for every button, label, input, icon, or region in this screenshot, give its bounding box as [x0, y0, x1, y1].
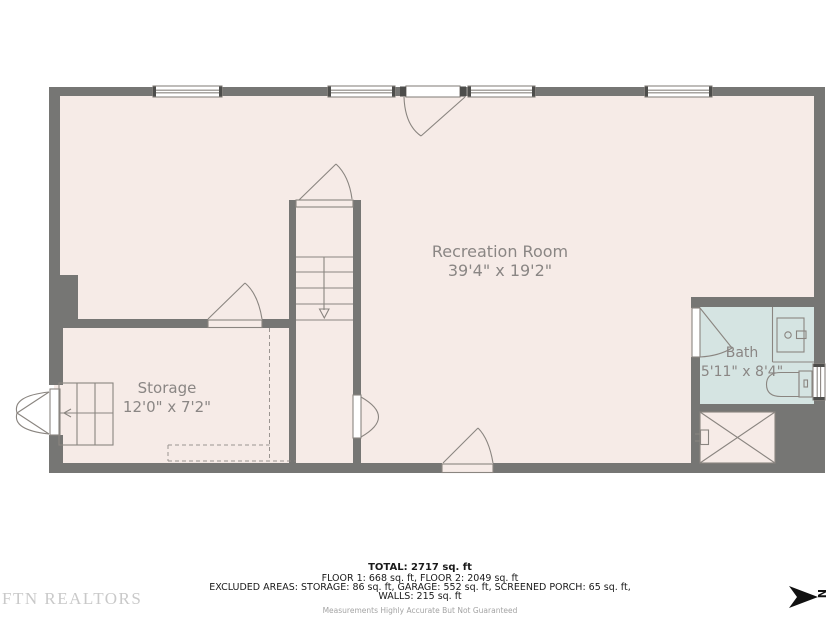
floor-plan-page: Recreation Room 39'4" x 19'2" Storage 12… — [0, 0, 840, 630]
room-name: Bath — [652, 344, 832, 363]
room-dimensions: 12'0" x 7'2" — [123, 398, 211, 416]
floor-plan-drawing — [0, 0, 840, 630]
room-dimensions: 5'11" x 8'4" — [701, 364, 783, 380]
north-label: N — [814, 589, 828, 605]
window — [328, 86, 395, 97]
window — [468, 86, 535, 97]
exterior-storage-door — [16, 389, 60, 435]
realtor-logo: FTN REALTORS — [2, 589, 142, 609]
room-name: Recreation Room — [390, 242, 610, 261]
total-area-text: TOTAL: 2717 sq. ft — [0, 562, 840, 573]
bath-room-label: Bath 5'11" x 8'4" — [652, 344, 832, 382]
recreation-room-label: Recreation Room 39'4" x 19'2" — [390, 242, 610, 280]
storage-room-label: Storage 12'0" x 7'2" — [77, 379, 257, 417]
room-name: Storage — [77, 379, 257, 398]
window — [645, 86, 712, 97]
window — [153, 86, 222, 97]
room-dimensions: 39'4" x 19'2" — [448, 261, 552, 280]
